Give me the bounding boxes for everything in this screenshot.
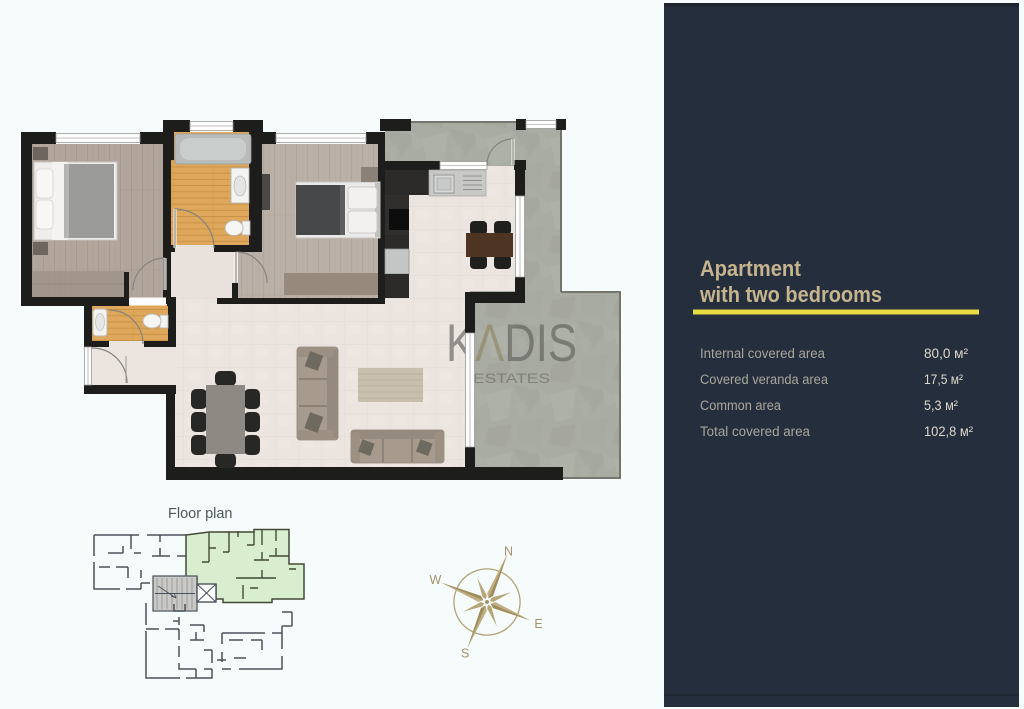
svg-text:Common area: Common area xyxy=(700,398,781,413)
svg-text:80,0 м²: 80,0 м² xyxy=(924,345,968,361)
svg-text:Covered veranda area: Covered veranda area xyxy=(700,372,828,387)
svg-text:S: S xyxy=(461,647,469,661)
svg-text:17,5 м²: 17,5 м² xyxy=(924,371,963,387)
svg-text:102,8 м²: 102,8 м² xyxy=(924,423,973,439)
svg-text:E: E xyxy=(534,617,542,631)
svg-text:Floor plan: Floor plan xyxy=(168,506,232,522)
svg-text:Apartment: Apartment xyxy=(700,256,802,281)
svg-text:with two bedrooms: with two bedrooms xyxy=(699,282,882,307)
svg-text:5,3 м²: 5,3 м² xyxy=(924,397,958,413)
svg-text:N: N xyxy=(504,544,513,558)
svg-text:Internal covered area: Internal covered area xyxy=(700,346,825,361)
svg-text:Total covered area: Total covered area xyxy=(700,424,810,439)
svg-text:ESTATES: ESTATES xyxy=(473,370,550,386)
svg-text:W: W xyxy=(430,573,442,587)
